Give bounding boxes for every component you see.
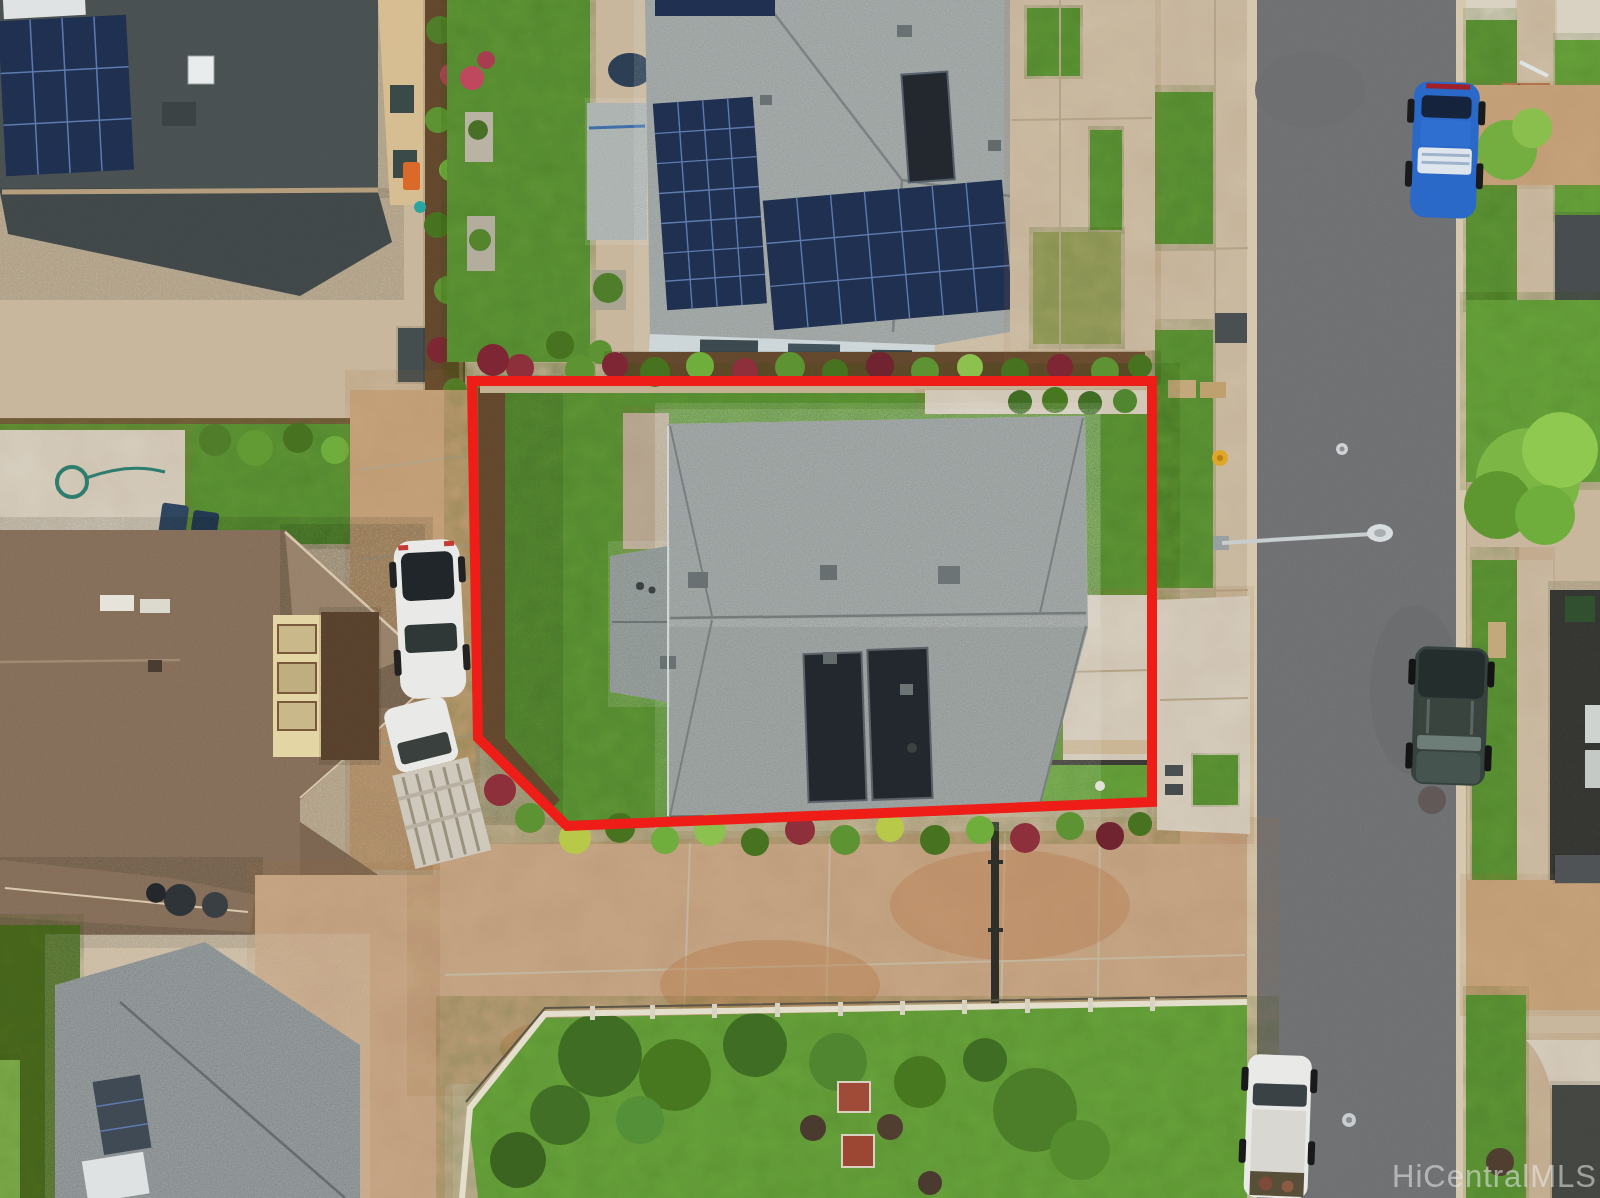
utility-box-green [1565,596,1595,622]
subject-street-apron [1157,596,1250,834]
ridge-cap [2,190,378,192]
bottom-lawn [462,996,1247,1198]
right-driveway-apron [1466,880,1600,1010]
pv-array-small [655,0,775,16]
neighbor-roof-right [1555,215,1600,303]
suv-roof-glass [400,551,454,602]
roof-vent [938,566,960,584]
roof-vent [688,572,708,588]
bottom-left-house [0,860,445,1198]
parking-strip-grass [1155,330,1213,588]
stored-gear [164,884,196,916]
flower-bush [460,66,484,90]
suv-windshield [1417,735,1481,751]
skylight [100,595,134,611]
skylight [140,599,170,613]
dark-suv [1405,646,1496,787]
pv-array-a [653,97,767,310]
solar-water-heater [901,72,954,183]
car-rear-glass [1421,95,1472,119]
parking-strip-grass [1155,92,1213,244]
left-patio [0,430,185,545]
pv-array-top-left [0,0,134,176]
subject-lot [472,381,1153,826]
aerial-photo: HiCentralMLS [0,0,1600,1198]
pickup-windshield [1253,1083,1308,1107]
suv-windshield [404,623,457,654]
top-house [447,0,1155,384]
orange-cooler [403,162,420,190]
blue-car [1404,81,1487,220]
blue-tarp [608,53,652,87]
roof-vent [820,565,837,580]
pv-array-b [763,180,1013,330]
subject-left-walk [623,413,669,549]
skylight [188,56,214,84]
top-house-wing-roof [587,103,647,240]
subject-bumpout-roof [610,546,668,702]
top-house-side-lawn [447,0,590,362]
white-pickup-truck [1237,1054,1318,1198]
subject-house [610,416,1088,818]
utility-box [1215,313,1247,343]
watermark: HiCentralMLS [1392,1159,1597,1194]
white-suv [388,538,472,700]
pickup-bed [1250,1109,1306,1173]
